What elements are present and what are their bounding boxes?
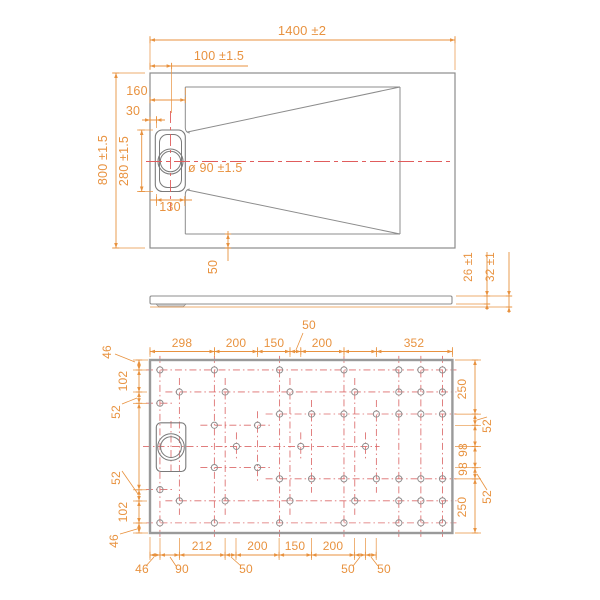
bottom-view-right-dim: 98: [456, 462, 470, 476]
bottom-view-top-dim: 200: [312, 336, 333, 350]
top-view-dim-channel-width: 130: [159, 200, 180, 214]
bottom-view-bottom-dim: 150: [285, 539, 306, 553]
bottom-view-left-dim: 102: [116, 371, 130, 392]
bottom-view-bottom-leader-dim: 50: [377, 562, 391, 576]
bottom-view-left-dim: 52: [109, 405, 123, 419]
bottom-view-top-dim: 150: [264, 336, 285, 350]
side-profile-view: [150, 296, 452, 307]
bottom-view-bottom-dim: 200: [323, 539, 344, 553]
bottom-view-left-dim: 102: [116, 502, 130, 523]
top-view-dim-border-width: 50: [206, 260, 220, 274]
bottom-view-left-dim: 46: [100, 345, 114, 359]
bottom-view-top-dim: 352: [404, 336, 425, 350]
technical-drawing-page: 1400 ±2100 ±1.516030800 ±1.5280 ±1.5ø 90…: [0, 0, 600, 600]
bottom-view-right-dim: 52: [480, 490, 494, 504]
bottom-view-right-dim: 52: [480, 419, 494, 433]
bottom-view-bottom-leader-dim: 46: [135, 562, 149, 576]
top-view-dim-overall-depth: 800 ±1.5: [96, 135, 110, 185]
top-view-dim-channel-length: 280 ±1.5: [117, 136, 131, 186]
top-view-dim-drain-center-offset: 100 ±1.5: [194, 49, 244, 63]
bottom-view-top-leader-dim: 50: [302, 318, 316, 332]
bottom-view-bottom-dim: 212: [192, 539, 213, 553]
bottom-view-right-dim: 98: [456, 443, 470, 457]
bottom-view-left-dim: 46: [107, 534, 121, 548]
bottom-view-bottom-leader-dim: 90: [175, 562, 189, 576]
bottom-view-top-dim: 298: [172, 336, 193, 350]
top-view-dim-floor-inset: 160: [126, 84, 147, 98]
bottom-view: [143, 356, 456, 537]
shower-tray-dimension-drawing: 1400 ±2100 ±1.516030800 ±1.5280 ±1.5ø 90…: [0, 0, 600, 600]
bottom-view-bottom-leader-dim: 50: [341, 562, 355, 576]
bottom-view-bottom-dim: 200: [247, 539, 268, 553]
bottom-view-right-dim: 250: [455, 379, 469, 400]
top-view-dim-drain-diameter: ø 90 ±1.5: [188, 161, 243, 175]
side-view-dim-total-thickness: 32 ±1: [485, 252, 497, 282]
bottom-view-left-dim: 52: [109, 471, 123, 485]
top-view-dim-overall-width: 1400 ±2: [278, 23, 326, 38]
bottom-view-right-dim: 250: [455, 497, 469, 518]
side-view-dim-edge-thickness: 26 ±1: [463, 252, 475, 282]
bottom-view-top-dim: 200: [226, 336, 247, 350]
top-view-dim-channel-edge-offset: 30: [126, 104, 140, 118]
bottom-view-bottom-leader-dim: 50: [239, 562, 253, 576]
